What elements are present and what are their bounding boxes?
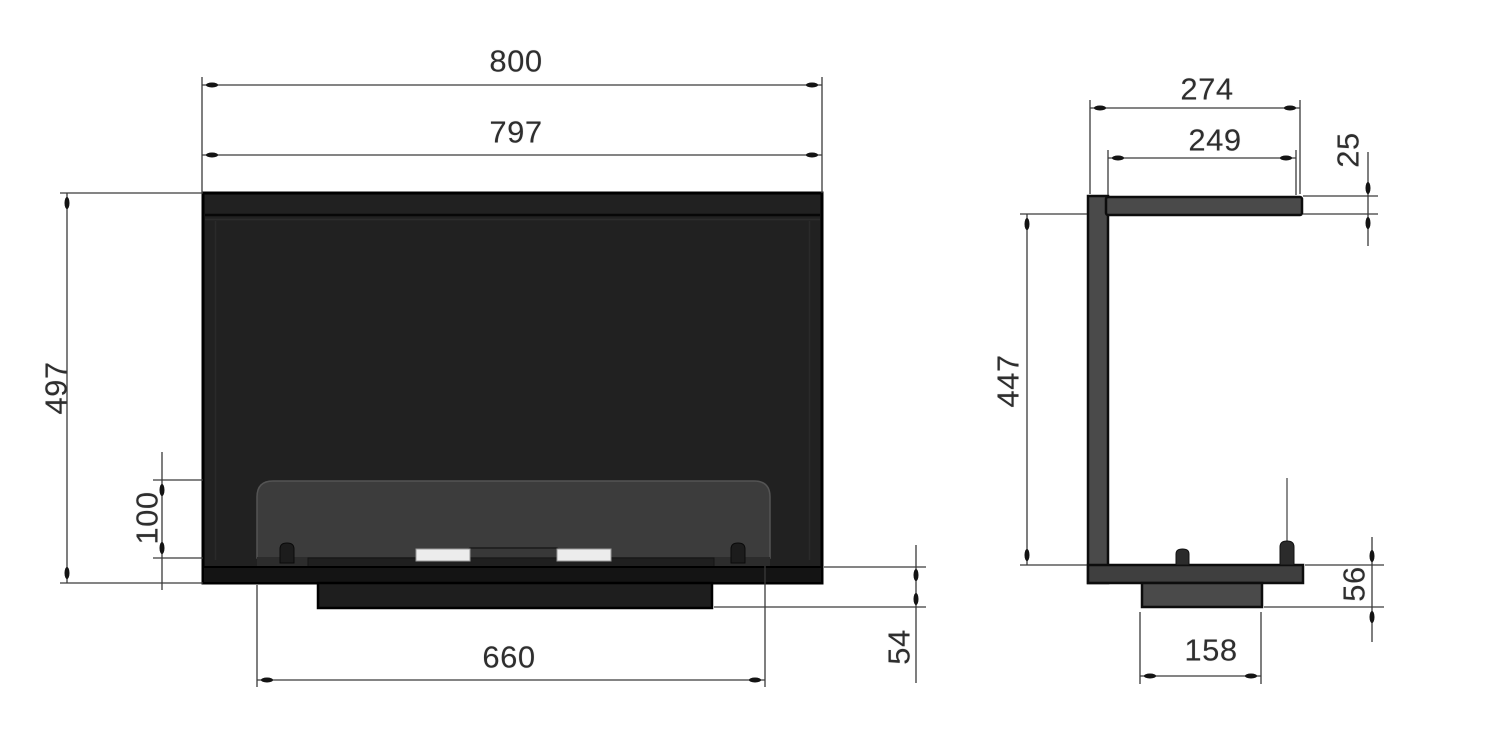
technical-drawing: 800 797 497 100 660 54 274 249 25 447 56… xyxy=(0,0,1500,749)
fuel-lid-left xyxy=(416,549,470,561)
dim-label-side-top-thickness: 25 xyxy=(1333,132,1364,167)
side-view xyxy=(1088,196,1303,607)
front-bottom-band xyxy=(203,567,822,583)
side-burner-tab xyxy=(1176,549,1189,565)
front-view xyxy=(203,193,822,608)
side-bottom-bar xyxy=(1088,565,1303,583)
dim-label-side-inner-depth: 249 xyxy=(1188,125,1241,156)
arrowhead xyxy=(65,197,70,209)
dim-label-side-outer-depth: 274 xyxy=(1180,74,1233,105)
glass-panel xyxy=(257,481,770,558)
arrowhead xyxy=(1284,106,1296,111)
arrowhead xyxy=(806,153,818,158)
arrowhead xyxy=(1025,549,1030,561)
side-back-wall xyxy=(1088,196,1108,583)
dim-label-front-base-height: 54 xyxy=(884,629,915,664)
front-base xyxy=(318,583,712,608)
dim-label-side-inner-height: 447 xyxy=(993,354,1024,407)
arrowhead xyxy=(806,83,818,88)
arrowhead xyxy=(65,567,70,579)
arrowhead xyxy=(1366,217,1371,229)
arrowhead xyxy=(1025,218,1030,230)
arrowhead xyxy=(1144,674,1156,679)
side-top-bar xyxy=(1106,197,1302,215)
arrowhead xyxy=(261,678,273,683)
arrowhead xyxy=(914,593,919,605)
dim-label-front-height: 497 xyxy=(41,361,72,414)
dim-label-front-burner-width: 660 xyxy=(482,642,535,673)
arrowhead xyxy=(1370,550,1375,562)
arrowhead xyxy=(1280,156,1292,161)
arrowhead xyxy=(206,83,218,88)
dim-label-front-front-width: 797 xyxy=(489,117,542,148)
dim-label-front-opening-height: 100 xyxy=(132,491,163,544)
glass-clamp-left xyxy=(280,543,294,563)
glass-clamp-right xyxy=(731,543,745,563)
burner-bar xyxy=(308,558,714,567)
side-glass-clamp xyxy=(1280,541,1294,565)
arrowhead xyxy=(914,569,919,581)
arrowhead xyxy=(1370,611,1375,623)
fuel-lid-right xyxy=(557,549,611,561)
drawing-geometry xyxy=(0,0,1500,749)
dim-label-side-base-depth: 158 xyxy=(1184,635,1237,666)
dim-label-front-outer-width: 800 xyxy=(489,46,542,77)
arrowhead xyxy=(1094,106,1106,111)
arrowhead xyxy=(749,678,761,683)
side-base xyxy=(1142,583,1262,607)
arrowhead xyxy=(1366,182,1371,194)
arrowhead xyxy=(206,153,218,158)
arrowhead xyxy=(1245,674,1257,679)
arrowhead xyxy=(1112,156,1124,161)
dim-label-side-base-height: 56 xyxy=(1339,566,1370,601)
burner-center-handle xyxy=(468,548,559,558)
